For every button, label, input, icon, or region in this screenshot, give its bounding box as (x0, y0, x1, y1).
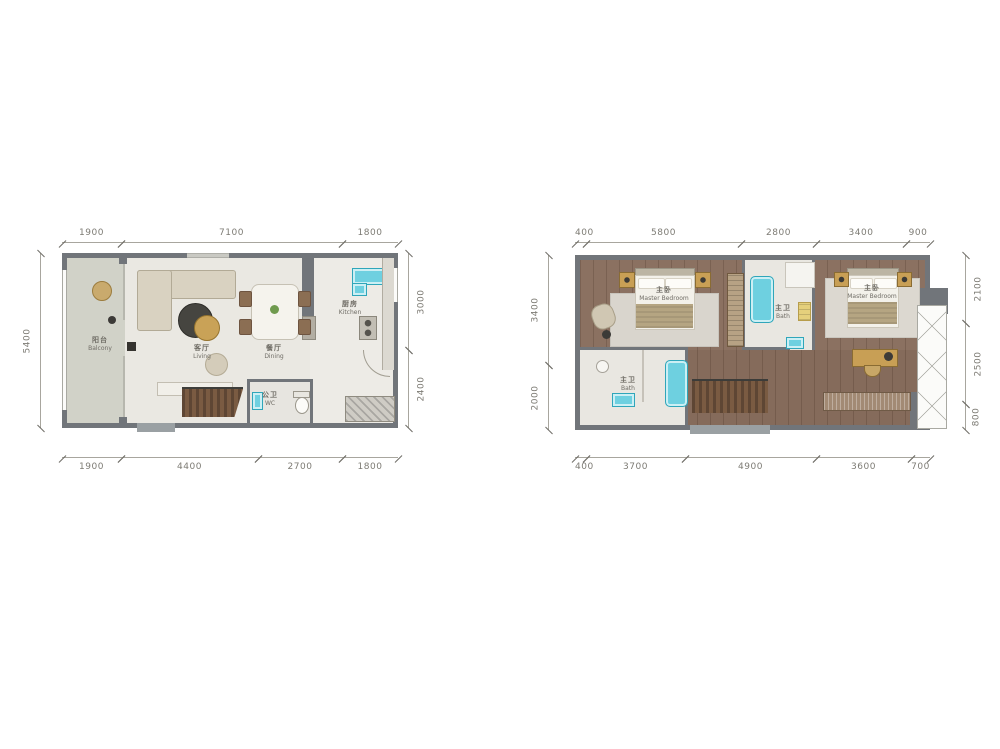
room-label-bath-1: 主卫 Bath (608, 376, 648, 392)
balcony-partition (123, 356, 125, 423)
bath-shelf (798, 302, 811, 321)
dim-top: 1900 (62, 242, 121, 243)
dim-bottom: 2700 (258, 457, 342, 458)
dim-right: 2100 (965, 255, 966, 323)
balcony-window (62, 270, 67, 410)
room-label-zh: 客厅 (172, 344, 232, 353)
wall-stub (119, 258, 127, 264)
dim-bottom: 3600 (816, 457, 911, 458)
room-label-master-bedroom-1: 主卧 Master Bedroom (635, 286, 693, 302)
entry-step (137, 423, 175, 432)
room-label-master-bedroom-2: 主卧 Master Bedroom (847, 284, 897, 300)
nightstand (619, 272, 635, 288)
room-label-zh: 主卫 (768, 304, 798, 313)
room-label-en: Bath (768, 313, 798, 321)
dim-top: 3400 (816, 242, 906, 243)
bath1-wall (580, 347, 688, 350)
room-label-balcony: 阳台 Balcony (75, 336, 125, 352)
dim-left: 2000 (548, 365, 549, 430)
dim-left: 5400 (40, 253, 41, 428)
dim-bottom: 400 (575, 457, 586, 458)
dim-right: 2500 (965, 323, 966, 404)
floorplan-level-2: 主卧 Master Bedroom 主卫 Bath 主卫 Bath 主卧 Mas… (575, 255, 930, 430)
room-label-zh: 主卧 (635, 286, 693, 295)
top-window (187, 253, 229, 258)
floorplan-sheet: 阳台 Balcony 客厅 Living 餐厅 Dining 厨房 Kitche… (0, 0, 1000, 749)
room-label-zh: 主卫 (608, 376, 648, 385)
room-label-en: Master Bedroom (847, 293, 897, 301)
shower-head (596, 360, 609, 373)
wardrobe (727, 273, 744, 347)
bed-blanket (848, 302, 897, 324)
dim-right: 800 (965, 404, 966, 430)
dim-bottom: 700 (911, 457, 930, 458)
balcony-partition (123, 258, 125, 320)
dim-top: 5800 (586, 242, 741, 243)
wall-stub (119, 417, 127, 423)
room-label-en: Dining (249, 353, 299, 361)
balcony-stool (108, 316, 116, 324)
bath2-wall (742, 347, 790, 350)
shower-area (785, 262, 815, 288)
room-label-zh: 餐厅 (249, 344, 299, 353)
stair-landing (690, 425, 770, 434)
dim-right: 3000 (408, 253, 409, 350)
floorplan-level-1: 阳台 Balcony 客厅 Living 餐厅 Dining 厨房 Kitche… (62, 253, 398, 428)
dim-bottom: 1800 (342, 457, 398, 458)
dim-top: 900 (906, 242, 930, 243)
speaker (127, 342, 136, 351)
side-stool (602, 330, 611, 339)
equipment-platform (345, 396, 395, 422)
room-label-en: Bath (608, 385, 648, 393)
coffee-table-gold (194, 315, 220, 341)
woven-rug (823, 392, 911, 411)
stove (359, 316, 377, 340)
room-label-dining: 餐厅 Dining (249, 344, 299, 360)
dim-top: 1800 (342, 242, 398, 243)
room-label-wc: 公卫 WC (255, 391, 285, 407)
toilet (295, 397, 309, 414)
dim-top: 400 (575, 242, 586, 243)
dining-chair (239, 291, 252, 307)
nightstand (695, 272, 711, 288)
dining-chair (239, 319, 252, 335)
wc-wall (247, 379, 250, 423)
room-label-en: Balcony (75, 345, 125, 353)
bathtub (665, 360, 688, 407)
kitchen-sink-counter (352, 283, 367, 296)
room-label-zh: 厨房 (325, 300, 375, 309)
dim-top: 2800 (741, 242, 816, 243)
room-label-en: Master Bedroom (635, 295, 693, 303)
dim-bottom: 1900 (62, 457, 121, 458)
balcony-chair (92, 281, 112, 301)
dim-bottom: 4400 (121, 457, 258, 458)
staircase (182, 389, 243, 417)
room-label-bath-2: 主卫 Bath (768, 304, 798, 320)
staircase (692, 381, 768, 413)
wc-wall (247, 379, 313, 382)
room-label-zh: 主卧 (847, 284, 897, 293)
dim-bottom: 4900 (685, 457, 816, 458)
stair-rail (692, 379, 768, 381)
bath-sink (786, 337, 804, 349)
bed-blanket (636, 304, 693, 328)
room-label-kitchen: 厨房 Kitchen (325, 300, 375, 316)
room-label-zh: 阳台 (75, 336, 125, 345)
wc-wall (310, 379, 313, 423)
dim-bottom: 3700 (586, 457, 685, 458)
room-label-living: 客厅 Living (172, 344, 232, 360)
dining-chair (298, 319, 311, 335)
stair-rail (182, 387, 243, 389)
bath-sink (612, 393, 635, 407)
dim-left: 3400 (548, 255, 549, 365)
dim-top: 7100 (121, 242, 342, 243)
nightstand (897, 272, 912, 287)
kitchen-partition-wall (302, 258, 314, 316)
desk-lamp (884, 352, 893, 361)
table-plant (270, 305, 279, 314)
sofa-chaise (137, 270, 172, 331)
room-label-en: Kitchen (325, 309, 375, 317)
dining-chair (298, 291, 311, 307)
room-label-en: Living (172, 353, 232, 361)
room-label-zh: 公卫 (255, 391, 285, 400)
room-label-en: WC (255, 400, 285, 408)
bay-window (917, 305, 947, 429)
dim-right: 2400 (408, 350, 409, 428)
